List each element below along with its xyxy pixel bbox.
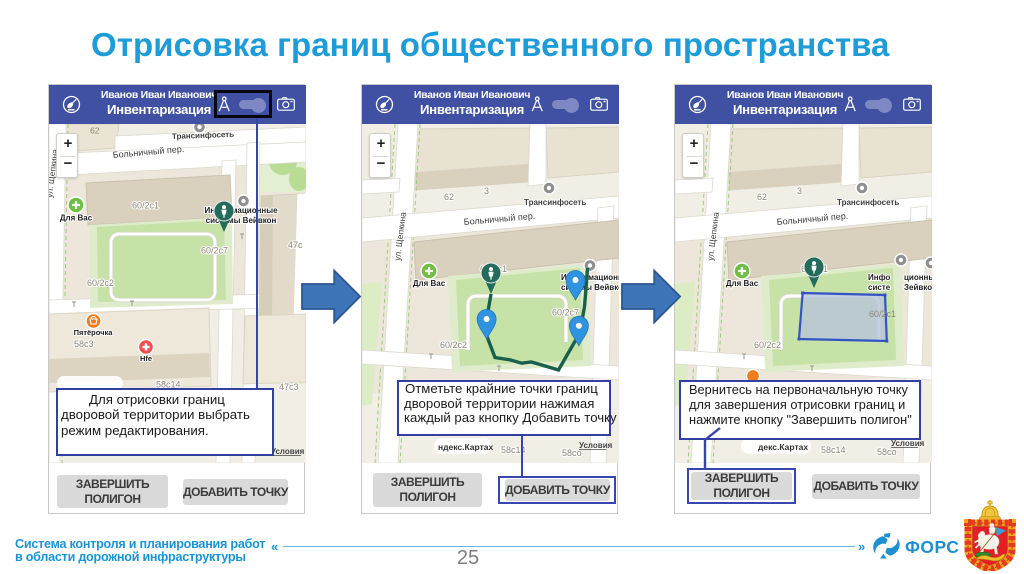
svg-text:62: 62 bbox=[444, 192, 454, 202]
svg-text:60/2с7: 60/2с7 bbox=[552, 308, 579, 318]
svg-text:Условия: Условия bbox=[579, 441, 613, 450]
svg-text:60/2с1: 60/2с1 bbox=[869, 309, 896, 319]
svg-text:Hfe: Hfe bbox=[140, 354, 152, 363]
svg-text:Инфо: Инфо bbox=[868, 273, 890, 282]
svg-text:Трансинфосеть: Трансинфосеть bbox=[524, 198, 586, 207]
svg-text:Для Вас: Для Вас bbox=[726, 279, 759, 288]
svg-text:3: 3 bbox=[797, 186, 802, 196]
svg-text:58с14: 58с14 bbox=[821, 445, 846, 455]
svg-text:47с: 47с bbox=[288, 240, 303, 250]
svg-text:Пятёрочка: Пятёрочка bbox=[74, 328, 114, 337]
svg-text:58со: 58со bbox=[562, 448, 582, 458]
svg-text:58со: 58со bbox=[877, 447, 897, 457]
svg-text:систе: систе bbox=[868, 283, 891, 292]
svg-text:ционны: ционны bbox=[904, 273, 932, 282]
svg-text:Зейвкон: Зейвкон bbox=[904, 283, 932, 292]
svg-text:Условия: Условия bbox=[271, 447, 305, 456]
svg-text:60/2с7: 60/2с7 bbox=[201, 246, 228, 256]
svg-text:62: 62 bbox=[90, 126, 100, 136]
svg-text:62: 62 bbox=[757, 192, 767, 202]
svg-text:Трансинфосеть: Трансинфосеть bbox=[837, 198, 899, 207]
svg-text:ндекс.Картах: ндекс.Картах bbox=[438, 442, 493, 452]
svg-text:Для Вас: Для Вас bbox=[413, 279, 446, 288]
svg-text:60/2с2: 60/2с2 bbox=[440, 340, 467, 350]
svg-text:60/2с2: 60/2с2 bbox=[87, 278, 114, 288]
svg-text:58с3: 58с3 bbox=[74, 339, 94, 349]
svg-text:47с3: 47с3 bbox=[279, 382, 299, 392]
svg-text:3: 3 bbox=[484, 186, 489, 196]
svg-text:декс.Картах: декс.Картах bbox=[758, 442, 808, 452]
svg-text:Для Вас: Для Вас bbox=[60, 214, 93, 223]
svg-text:60/2с1: 60/2с1 bbox=[132, 201, 159, 211]
svg-text:60/2с2: 60/2с2 bbox=[754, 340, 781, 350]
